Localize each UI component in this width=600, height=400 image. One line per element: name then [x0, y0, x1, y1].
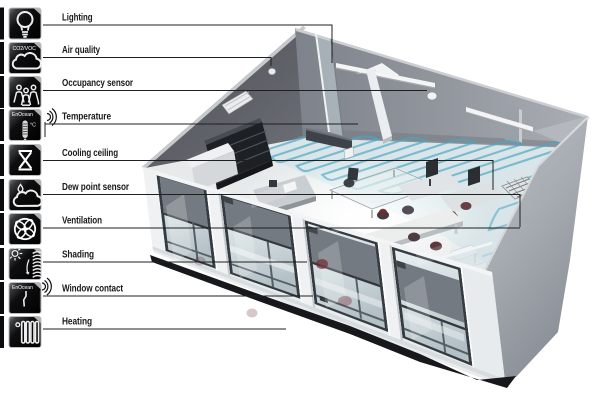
svg-text:Air quality: Air quality [62, 45, 100, 56]
svg-text:Temperature: Temperature [62, 112, 111, 123]
svg-text:°C: °C [30, 123, 36, 129]
svg-text:EnOcean: EnOcean [12, 285, 33, 291]
svg-text:EnOcean: EnOcean [12, 112, 33, 118]
svg-text:Occupancy sensor: Occupancy sensor [62, 78, 133, 89]
svg-text:Heating: Heating [62, 317, 92, 328]
svg-text:Dew point sensor: Dew point sensor [62, 182, 129, 193]
svg-text:Shading: Shading [62, 250, 94, 261]
svg-text:CO2/VOC: CO2/VOC [13, 46, 37, 52]
svg-text:Window contact: Window contact [62, 284, 124, 295]
svg-text:Ventilation: Ventilation [62, 216, 102, 227]
svg-text:Cooling ceiling: Cooling ceiling [62, 148, 118, 159]
svg-text:Lighting: Lighting [62, 13, 93, 24]
